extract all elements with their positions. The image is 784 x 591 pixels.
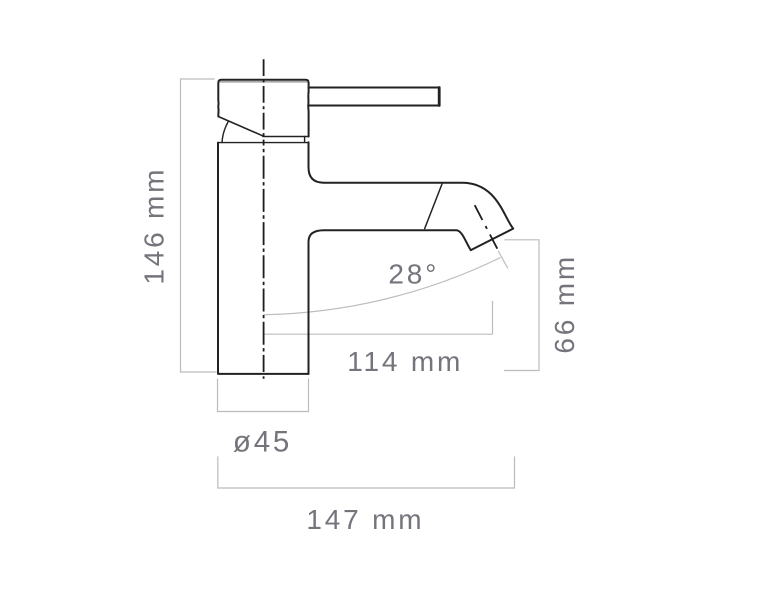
svg-text:66 mm: 66 mm [549, 254, 580, 354]
svg-text:ø45: ø45 [233, 426, 292, 459]
svg-text:114 mm: 114 mm [347, 346, 463, 377]
svg-text:146 mm: 146 mm [139, 167, 170, 285]
svg-text:147 mm: 147 mm [306, 504, 424, 535]
svg-text:28°: 28° [388, 258, 439, 289]
